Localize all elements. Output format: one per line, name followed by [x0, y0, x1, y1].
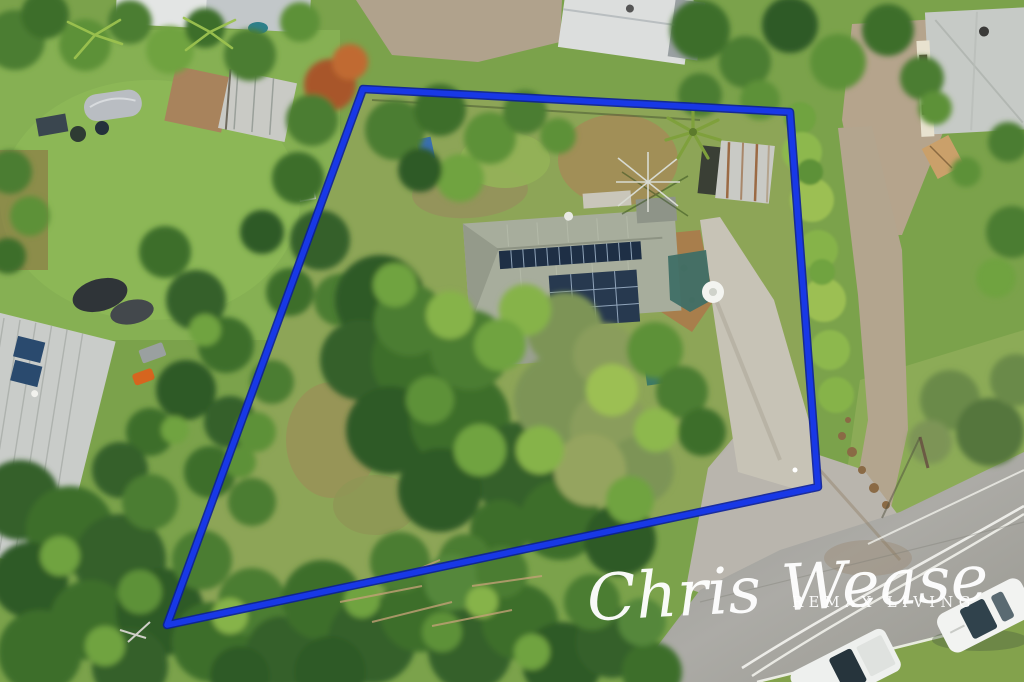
garden-shed [697, 138, 775, 203]
aerial-photo-canvas: Chris Wease REMAX LIVING [0, 0, 1024, 682]
marker-post [793, 468, 798, 473]
watermark-brand: REMAX LIVING [792, 595, 976, 611]
teal-tarp [668, 250, 712, 312]
aerial-photo: Chris Wease REMAX LIVING [0, 0, 1024, 682]
